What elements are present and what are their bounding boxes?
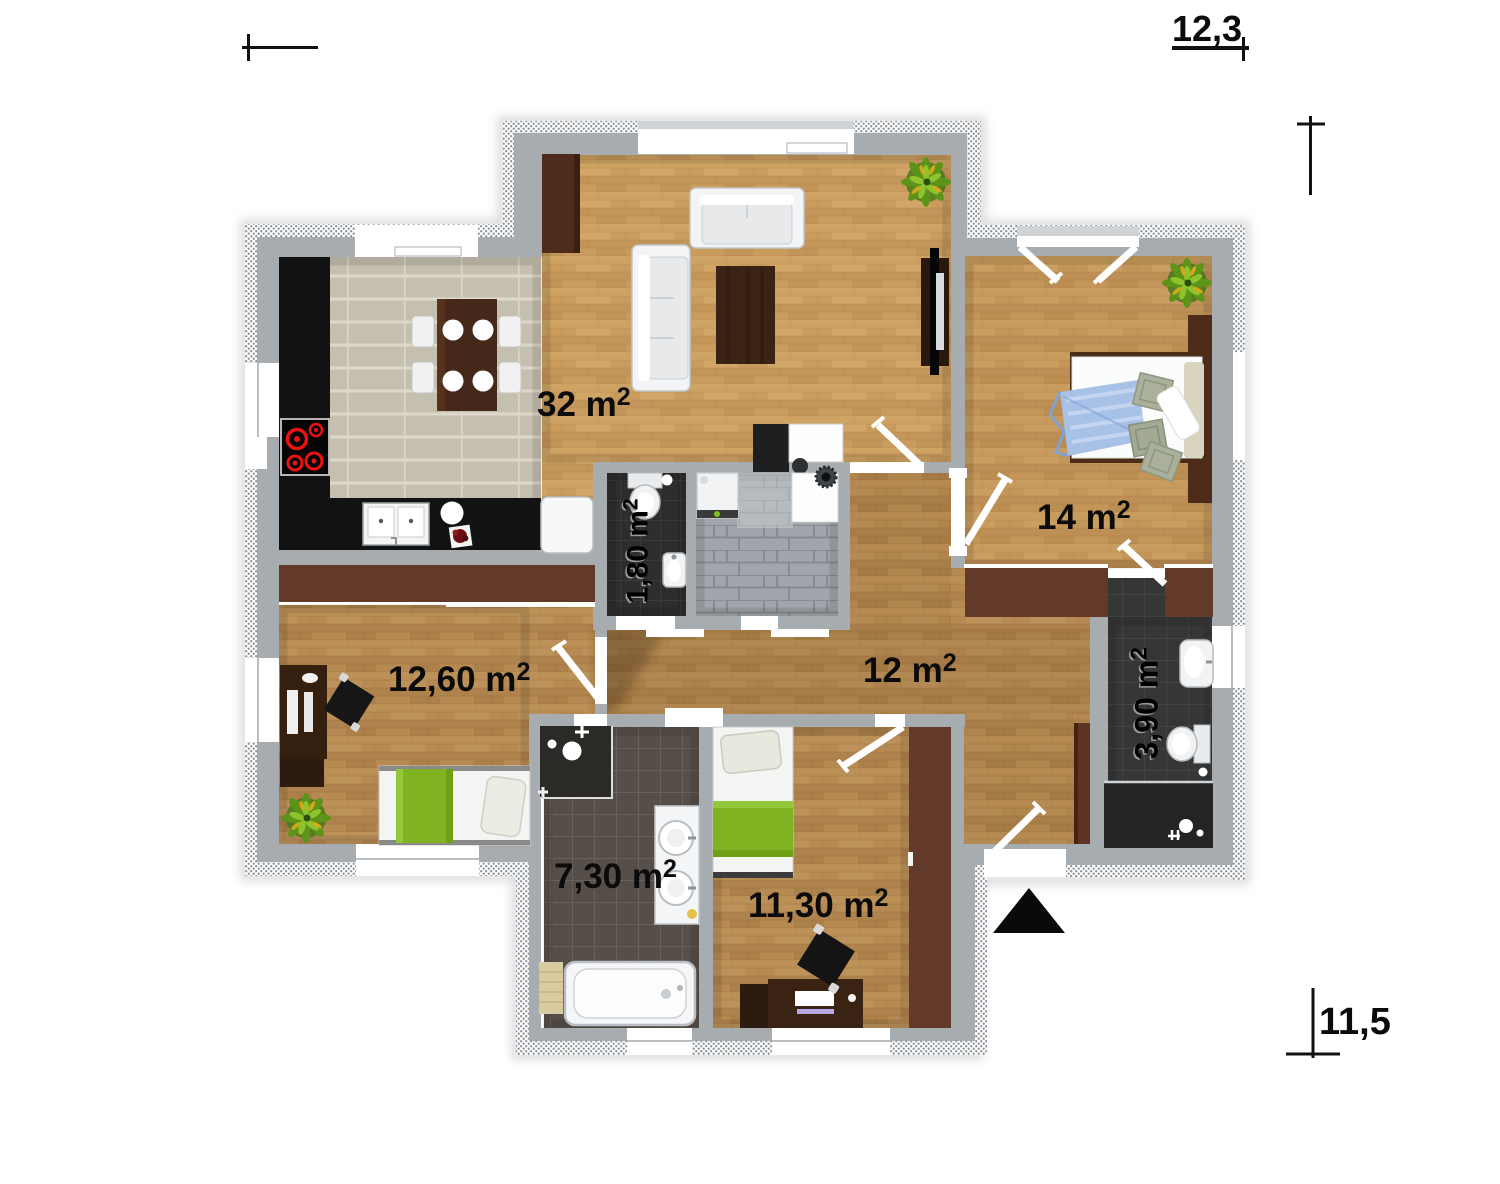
svg-text:12,60 m2: 12,60 m2 bbox=[388, 658, 530, 699]
svg-text:1,80 m2: 1,80 m2 bbox=[620, 498, 655, 603]
svg-text:12 m2: 12 m2 bbox=[863, 649, 957, 690]
svg-text:32 m2: 32 m2 bbox=[537, 383, 631, 424]
svg-text:3,90 m2: 3,90 m2 bbox=[1126, 647, 1165, 759]
svg-text:7,30 m2: 7,30 m2 bbox=[554, 855, 677, 896]
svg-text:11,5: 11,5 bbox=[1319, 1001, 1391, 1043]
svg-text:12,3: 12,3 bbox=[1172, 8, 1242, 49]
svg-text:11,30 m2: 11,30 m2 bbox=[748, 884, 888, 925]
svg-text:14 m2: 14 m2 bbox=[1037, 496, 1131, 537]
